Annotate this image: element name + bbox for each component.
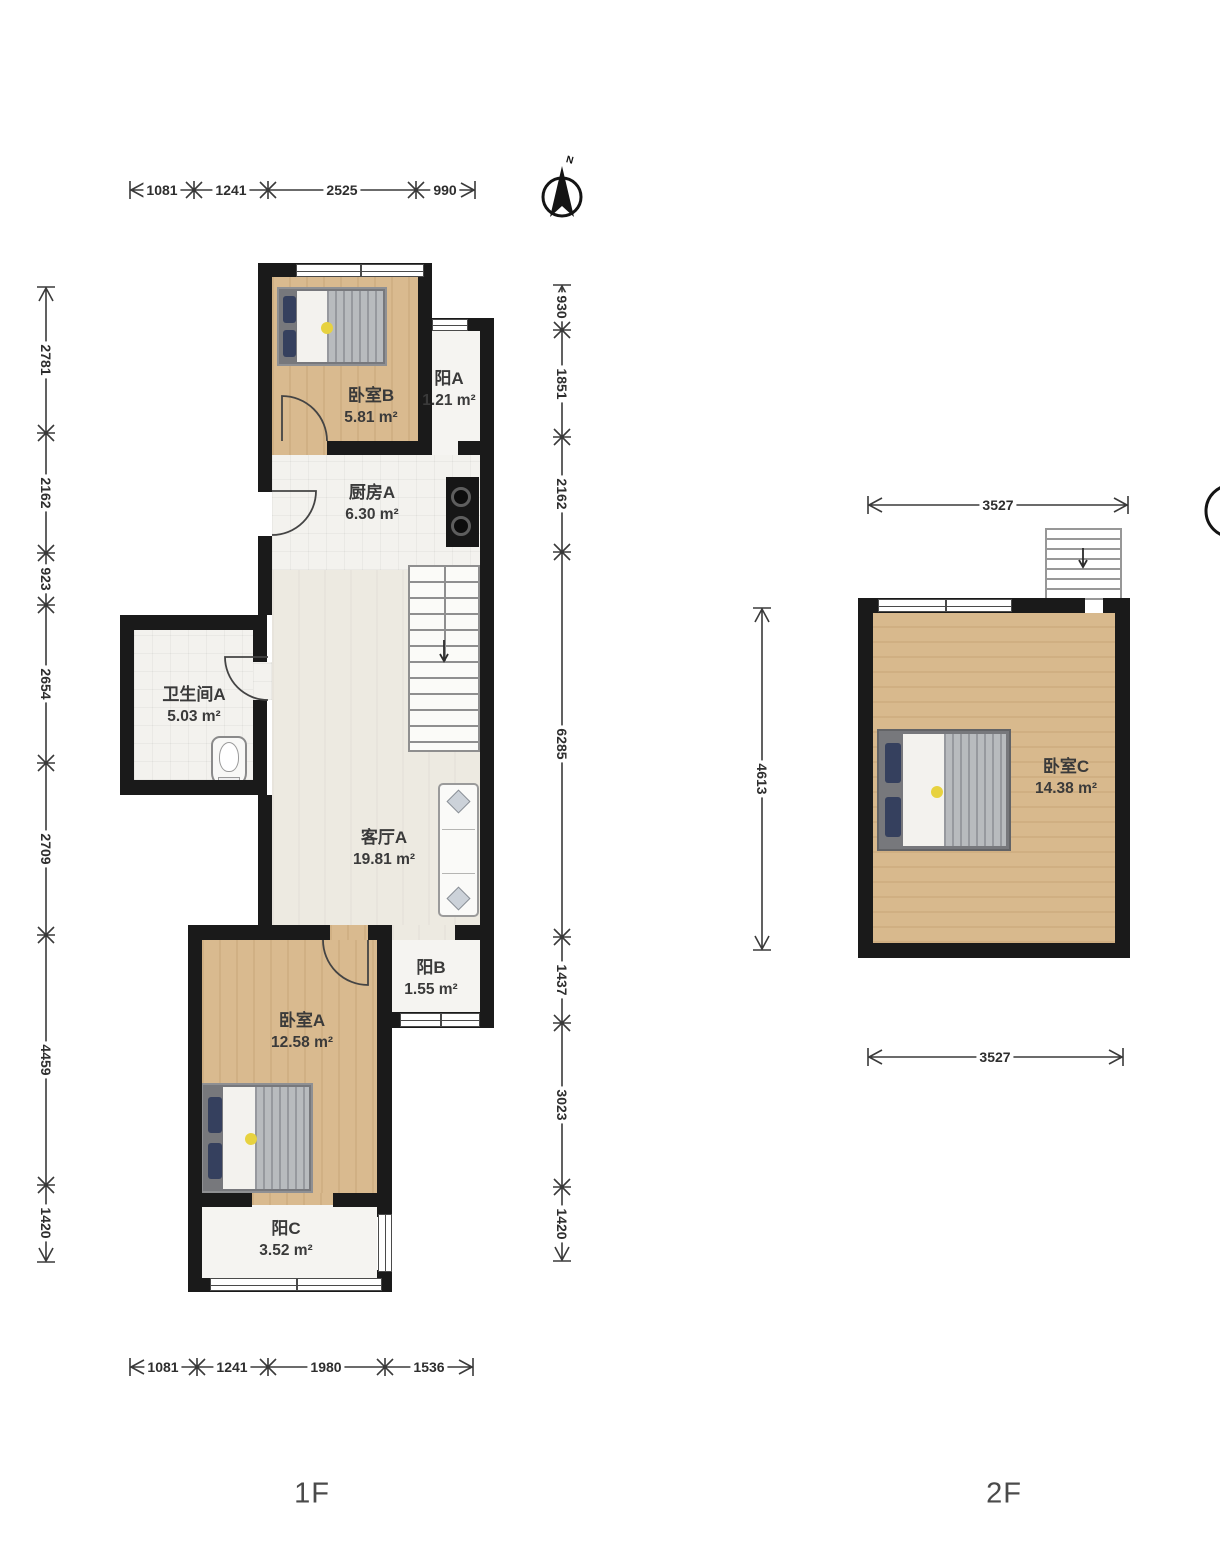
room-area: 3.52 m² xyxy=(259,1241,312,1262)
room-label-livingA: 客厅A 19.81 m² xyxy=(353,827,415,871)
room-label-bedroomC: 卧室C 14.38 m² xyxy=(1035,756,1097,800)
room-area: 19.81 m² xyxy=(353,850,415,871)
dim-value: 2709 xyxy=(38,830,54,867)
dim-value: 2162 xyxy=(38,474,54,511)
dim-value: 2781 xyxy=(38,341,54,378)
room-area: 12.58 m² xyxy=(271,1033,333,1054)
dim-value: 2654 xyxy=(38,665,54,702)
dim-value: 1241 xyxy=(212,182,249,198)
dim-value: 2525 xyxy=(323,182,360,198)
room-label-balconyC: 阳C 3.52 m² xyxy=(259,1218,312,1262)
door-arc xyxy=(323,940,368,985)
dim-value: 3527 xyxy=(976,1049,1013,1065)
room-name: 阳A xyxy=(422,368,475,391)
room-name: 阳B xyxy=(404,957,457,980)
dim-value: 1241 xyxy=(213,1359,250,1375)
dim-value: 1437 xyxy=(554,961,570,998)
room-label-kitchenA: 厨房A 6.30 m² xyxy=(345,482,398,526)
dim-value: 1420 xyxy=(38,1204,54,1241)
room-area: 1.55 m² xyxy=(404,980,457,1001)
dim-value: 4613 xyxy=(754,760,770,797)
floor1-title: 1F xyxy=(294,1478,330,1511)
room-label-balconyB: 阳B 1.55 m² xyxy=(404,957,457,1001)
dim-value: 990 xyxy=(430,182,459,198)
stair-direction-arrow xyxy=(440,640,448,661)
room-label-bathroomA: 卫生间A 5.03 m² xyxy=(162,684,225,728)
door-arc xyxy=(225,657,268,700)
room-area: 5.81 m² xyxy=(344,408,397,429)
door-arc xyxy=(282,396,327,441)
room-name: 卧室C xyxy=(1035,756,1097,779)
dim-line-1f-left xyxy=(37,287,55,1262)
dim-value: 1536 xyxy=(410,1359,447,1375)
floor-plan-canvas: 卧室B 5.81 m² 阳A 1.21 m² 厨房A 6.30 m² 卫生间A … xyxy=(0,0,1220,1547)
dim-value: 3527 xyxy=(979,497,1016,513)
room-name: 阳C xyxy=(259,1218,312,1241)
dim-value: 1980 xyxy=(307,1359,344,1375)
dim-value: 3023 xyxy=(554,1086,570,1123)
room-area: 1.21 m² xyxy=(422,391,475,412)
dim-value: 6285 xyxy=(554,725,570,762)
room-area: 5.03 m² xyxy=(162,707,225,728)
room-area: 14.38 m² xyxy=(1035,779,1097,800)
room-name: 卧室A xyxy=(271,1010,333,1033)
floor2-title: 2F xyxy=(986,1478,1022,1511)
room-label-balconyA: 阳A 1.21 m² xyxy=(422,368,475,412)
stair-direction-arrow-2f xyxy=(1079,548,1087,567)
room-name: 客厅A xyxy=(353,827,415,850)
dim-value: 1420 xyxy=(554,1205,570,1242)
dim-value: 930 xyxy=(554,292,570,321)
room-name: 厨房A xyxy=(345,482,398,505)
dim-line-1f-top xyxy=(130,181,475,199)
edge-compass-partial xyxy=(1206,485,1220,537)
room-area: 6.30 m² xyxy=(345,505,398,526)
dim-value: 923 xyxy=(38,564,54,593)
room-name: 卧室B xyxy=(344,385,397,408)
door-arc xyxy=(272,491,316,535)
dim-value: 1081 xyxy=(143,182,180,198)
dim-value: 2162 xyxy=(554,475,570,512)
north-compass-needle xyxy=(550,166,574,217)
dim-value: 1851 xyxy=(554,365,570,402)
dim-value: 1081 xyxy=(144,1359,181,1375)
room-label-bedroomB: 卧室B 5.81 m² xyxy=(344,385,397,429)
room-name: 卫生间A xyxy=(162,684,225,707)
dim-value: 4459 xyxy=(38,1041,54,1078)
room-label-bedroomA: 卧室A 12.58 m² xyxy=(271,1010,333,1054)
